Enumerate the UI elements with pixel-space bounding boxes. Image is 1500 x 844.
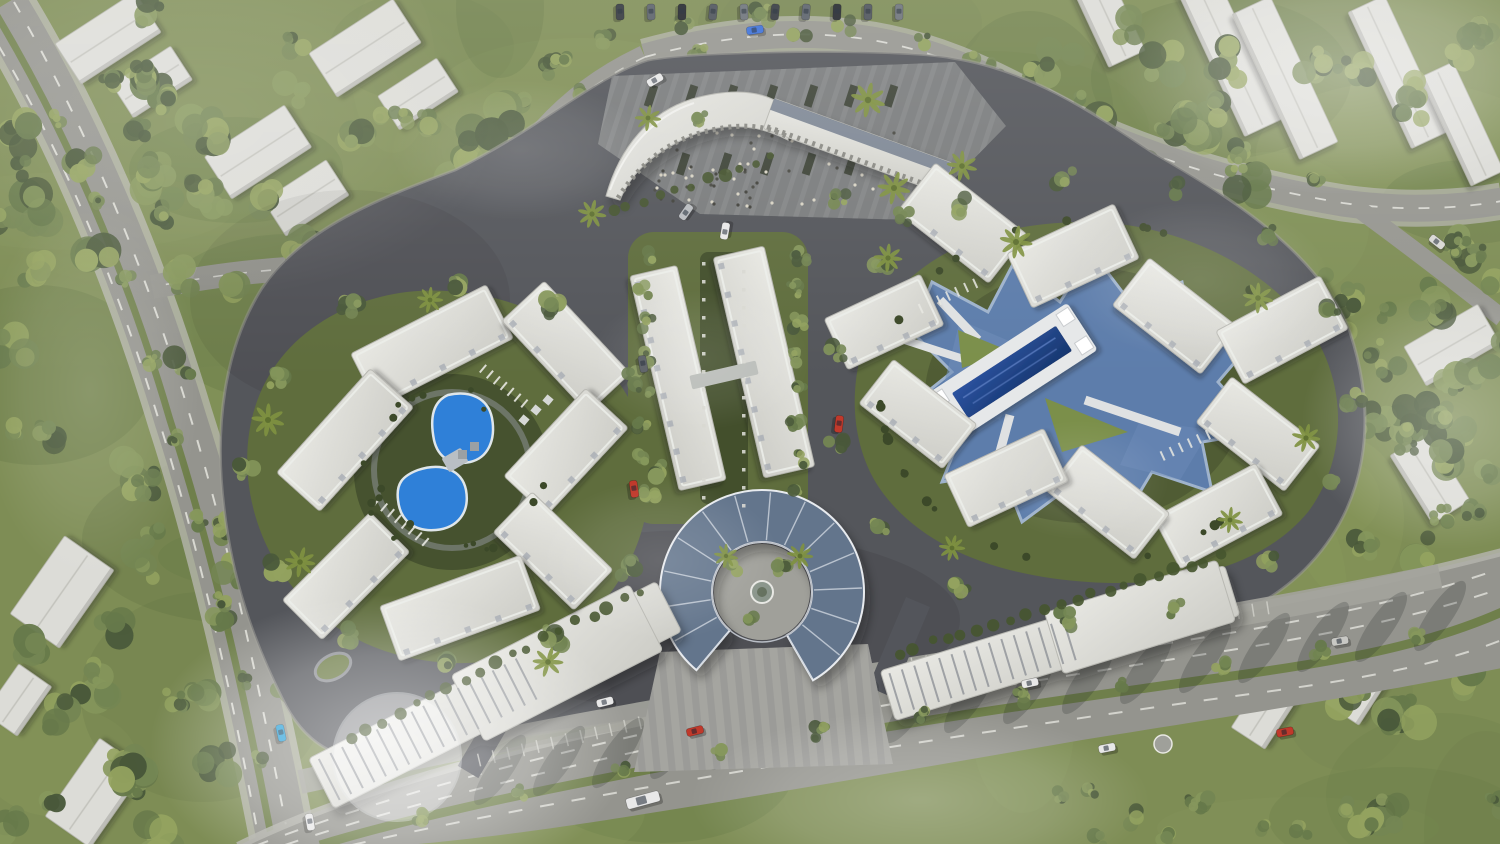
aerial-render-stage — [0, 0, 1500, 844]
light-veil — [0, 0, 1500, 844]
aerial-render — [0, 0, 1500, 844]
